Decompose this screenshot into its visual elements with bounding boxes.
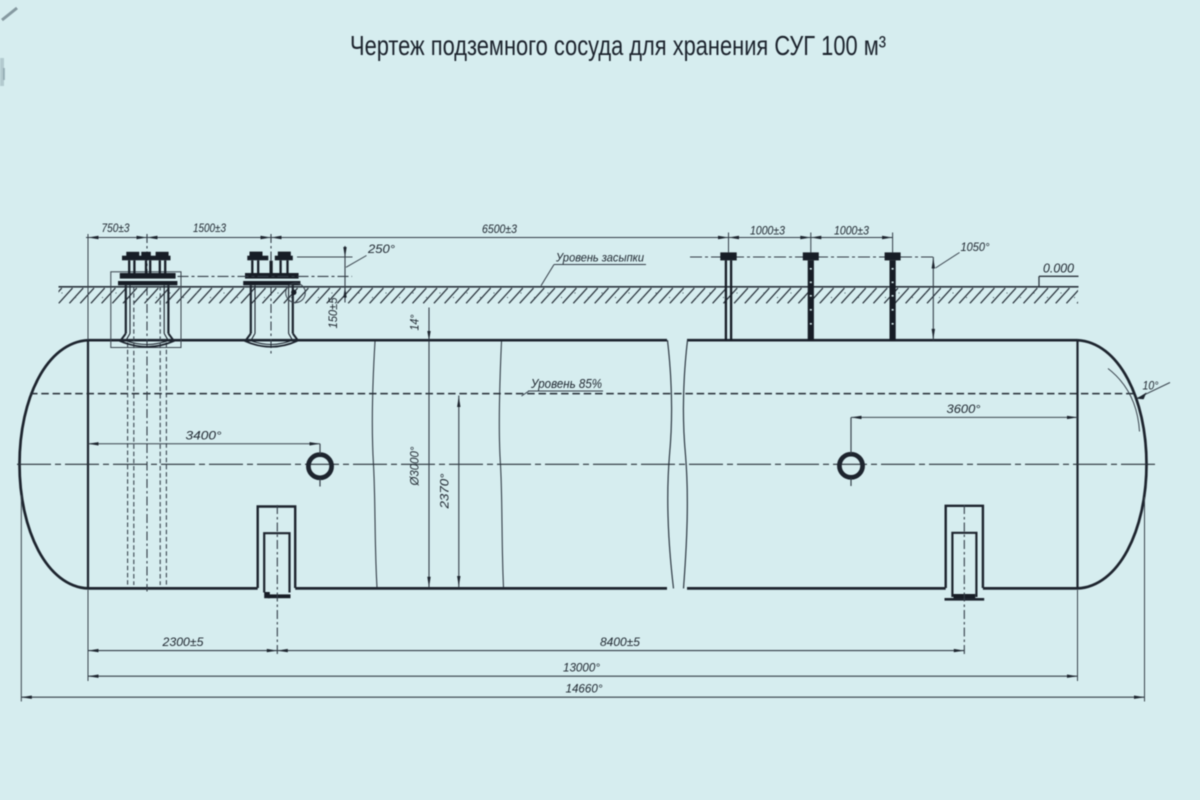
svg-text:Уровень 85%: Уровень 85% [530, 377, 602, 391]
svg-text:2300±5: 2300±5 [162, 635, 204, 649]
svg-text:1000±3: 1000±3 [750, 224, 785, 238]
svg-text:10°: 10° [1143, 381, 1159, 393]
svg-text:0.000: 0.000 [1043, 262, 1074, 276]
svg-text:Чертеж подземного сосуда для х: Чертеж подземного сосуда для хранения СУ… [350, 30, 886, 61]
svg-text:Уровень засыпки: Уровень засыпки [555, 251, 644, 265]
svg-text:2370°: 2370° [438, 473, 452, 509]
svg-text:Ø3000°: Ø3000° [407, 446, 421, 486]
svg-text:1050°: 1050° [961, 240, 990, 254]
svg-text:8400±5: 8400±5 [600, 635, 640, 649]
svg-text:14660°: 14660° [566, 681, 603, 695]
svg-text:250°: 250° [367, 242, 395, 256]
svg-text:1500±3: 1500±3 [193, 221, 226, 235]
svg-text:3400°: 3400° [186, 429, 222, 443]
svg-text:750±3: 750±3 [102, 221, 130, 235]
svg-text:1000±3: 1000±3 [834, 224, 869, 238]
svg-text:6500±3: 6500±3 [482, 222, 517, 236]
svg-text:3600°: 3600° [947, 402, 981, 416]
svg-text:150±5: 150±5 [326, 297, 340, 328]
svg-text:14°: 14° [410, 314, 422, 330]
svg-text:13000°: 13000° [563, 660, 600, 674]
